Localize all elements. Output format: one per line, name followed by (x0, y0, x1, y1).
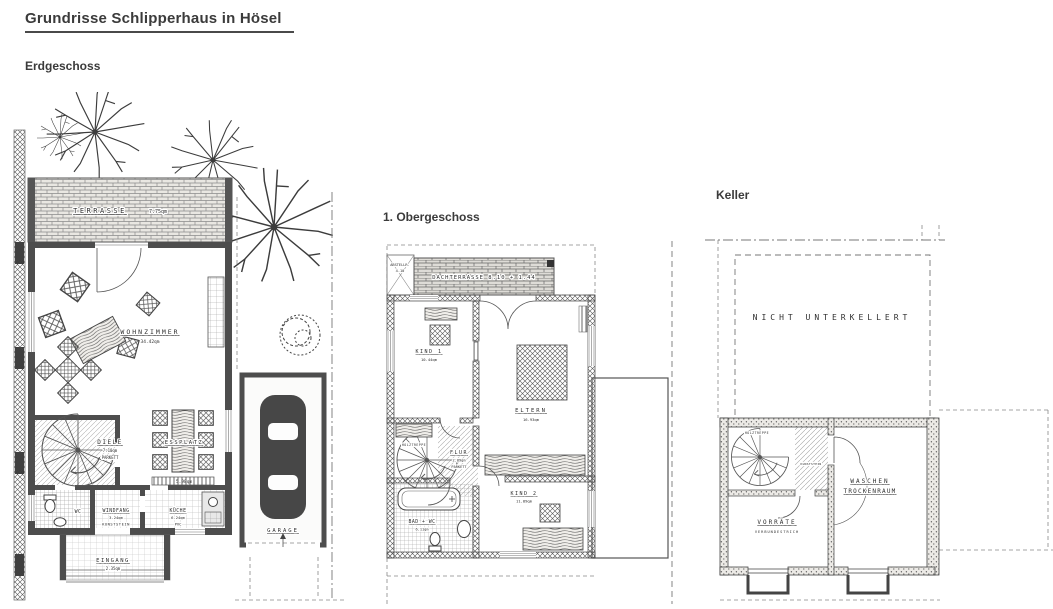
windfang-label: WINDFANG (102, 508, 129, 514)
hedge-strip (14, 130, 25, 600)
terrasse-label: TERRASSE (73, 207, 127, 215)
bad-label: BAD + WC (408, 519, 435, 525)
vorraete-floor-label: VERBUNDESTRICH (755, 530, 799, 534)
diele-floor-label: PARKETT (102, 455, 119, 460)
flur-floor-label: PARKETT (451, 465, 467, 469)
kind2-label: KIND 2 (510, 491, 537, 497)
garage-footprint (592, 378, 668, 558)
erdgeschoss-plan: TERRASSE 7.75qm (0, 92, 345, 609)
bad-area-label: 6.11qm (416, 528, 429, 532)
eltern-room: ELTERN 16.93qm (485, 306, 587, 475)
car-icon (260, 395, 306, 519)
sink-icon (458, 521, 471, 538)
toilet-icon (45, 500, 55, 513)
kunststein-label: KUNSTSTEIN (800, 462, 821, 466)
scanned-floorplan-page: { "page": { "title": "Grundrisse Schlipp… (0, 0, 1053, 609)
driveway-lines (235, 557, 345, 600)
waschen-label: WASCHEN (850, 478, 889, 485)
flur-area-label: 2.89qm (453, 459, 466, 463)
door-swing (480, 301, 536, 329)
diele-area-label: 7.10qm (103, 448, 118, 453)
cabinet-icon (208, 277, 224, 347)
essplatz-label: ESSPLATZ (165, 440, 204, 446)
dimension-lines (720, 410, 1053, 600)
tree-icon (37, 114, 84, 159)
abstellraum-area-label: 4.10 (396, 269, 405, 273)
radiator-icon (152, 477, 214, 485)
tree-icon (47, 92, 145, 178)
dimension-lines (387, 558, 595, 604)
holztreppe-label: HOLZTREPPE (402, 443, 426, 447)
kueche-floor-label: PVC (175, 522, 182, 527)
terrasse-area-label: 7.75qm (149, 209, 167, 215)
terrasse-area: TERRASSE 7.75qm (28, 178, 232, 242)
windfang-area-label: 3.24qm (109, 515, 123, 520)
nicht-unterkellert-outline (735, 255, 930, 425)
kitchen-counter-icon (202, 492, 224, 526)
abstellraum-area: ABSTELLR. 4.10 (387, 255, 414, 295)
kind1-area-label: 10.44qm (421, 357, 438, 362)
trockenraum-label: TROCKENRAUM (844, 488, 897, 495)
eingang-label: EINGANG (96, 558, 130, 564)
diele-label: DIELE (97, 439, 123, 446)
eltern-area-label: 16.93qm (523, 417, 540, 422)
kind1-room: KIND 1 10.44qm (415, 308, 457, 362)
sofa-group-icon (39, 272, 160, 363)
kueche-label: KÜCHE (170, 507, 187, 514)
vorraete-label: VORRÄTE (757, 519, 796, 526)
keller-plan: NICHT UNTERKELLERT HOLZTREPPE KUNSTSTEIN… (700, 225, 1053, 609)
spiral-stairs-icon (732, 429, 789, 486)
wardrobe-icon (396, 424, 432, 437)
wohnzimmer-label: WOHNZIMMER (120, 328, 179, 336)
kind2-room: KIND 2 11.89qm (510, 491, 583, 550)
kueche-area-label: 6.24qm (171, 515, 185, 520)
holztreppe-label: HOLZTREPPE (745, 431, 769, 435)
door-swing (95, 245, 148, 292)
heading-keller: Keller (716, 188, 749, 202)
eingang-area-label: 2.35qm (106, 566, 121, 571)
heading-obergeschoss: 1. Obergeschoss (383, 210, 480, 224)
toilet-icon (430, 533, 440, 546)
dachterrasse-label: DACHTERRASSE 8.10 + 1.44 (432, 275, 535, 281)
landing-floor (795, 427, 828, 490)
obergeschoss-plan: ABSTELLR. 4.10 DACHTERRASSE 8.10 + 1.44 (380, 236, 680, 609)
abstellraum-label: ABSTELLR. (390, 263, 409, 267)
windfang-floor-label: KUNSTSTEIN (102, 522, 130, 527)
bush-icon (280, 315, 320, 355)
wc-label: WC (75, 509, 82, 515)
sink-icon (54, 518, 66, 526)
heading-erdgeschoss: Erdgeschoss (25, 59, 100, 73)
nicht-unterkellert-label: NICHT UNTERKELLERT (753, 313, 912, 322)
dachterrasse-area: DACHTERRASSE 8.10 + 1.44 (414, 258, 554, 295)
flur-label: FLUR (450, 450, 468, 456)
page-title: Grundrisse Schlipperhaus in Hösel (25, 10, 294, 33)
bad-room: BAD + WC 6.11qm (393, 484, 473, 552)
kind2-area-label: 11.89qm (516, 499, 533, 504)
garage-area: GARAGE (242, 375, 324, 548)
eltern-label: ELTERN (515, 408, 547, 414)
wohnzimmer-area-label: 34.42qm (141, 339, 160, 345)
kind1-label: KIND 1 (415, 349, 442, 355)
